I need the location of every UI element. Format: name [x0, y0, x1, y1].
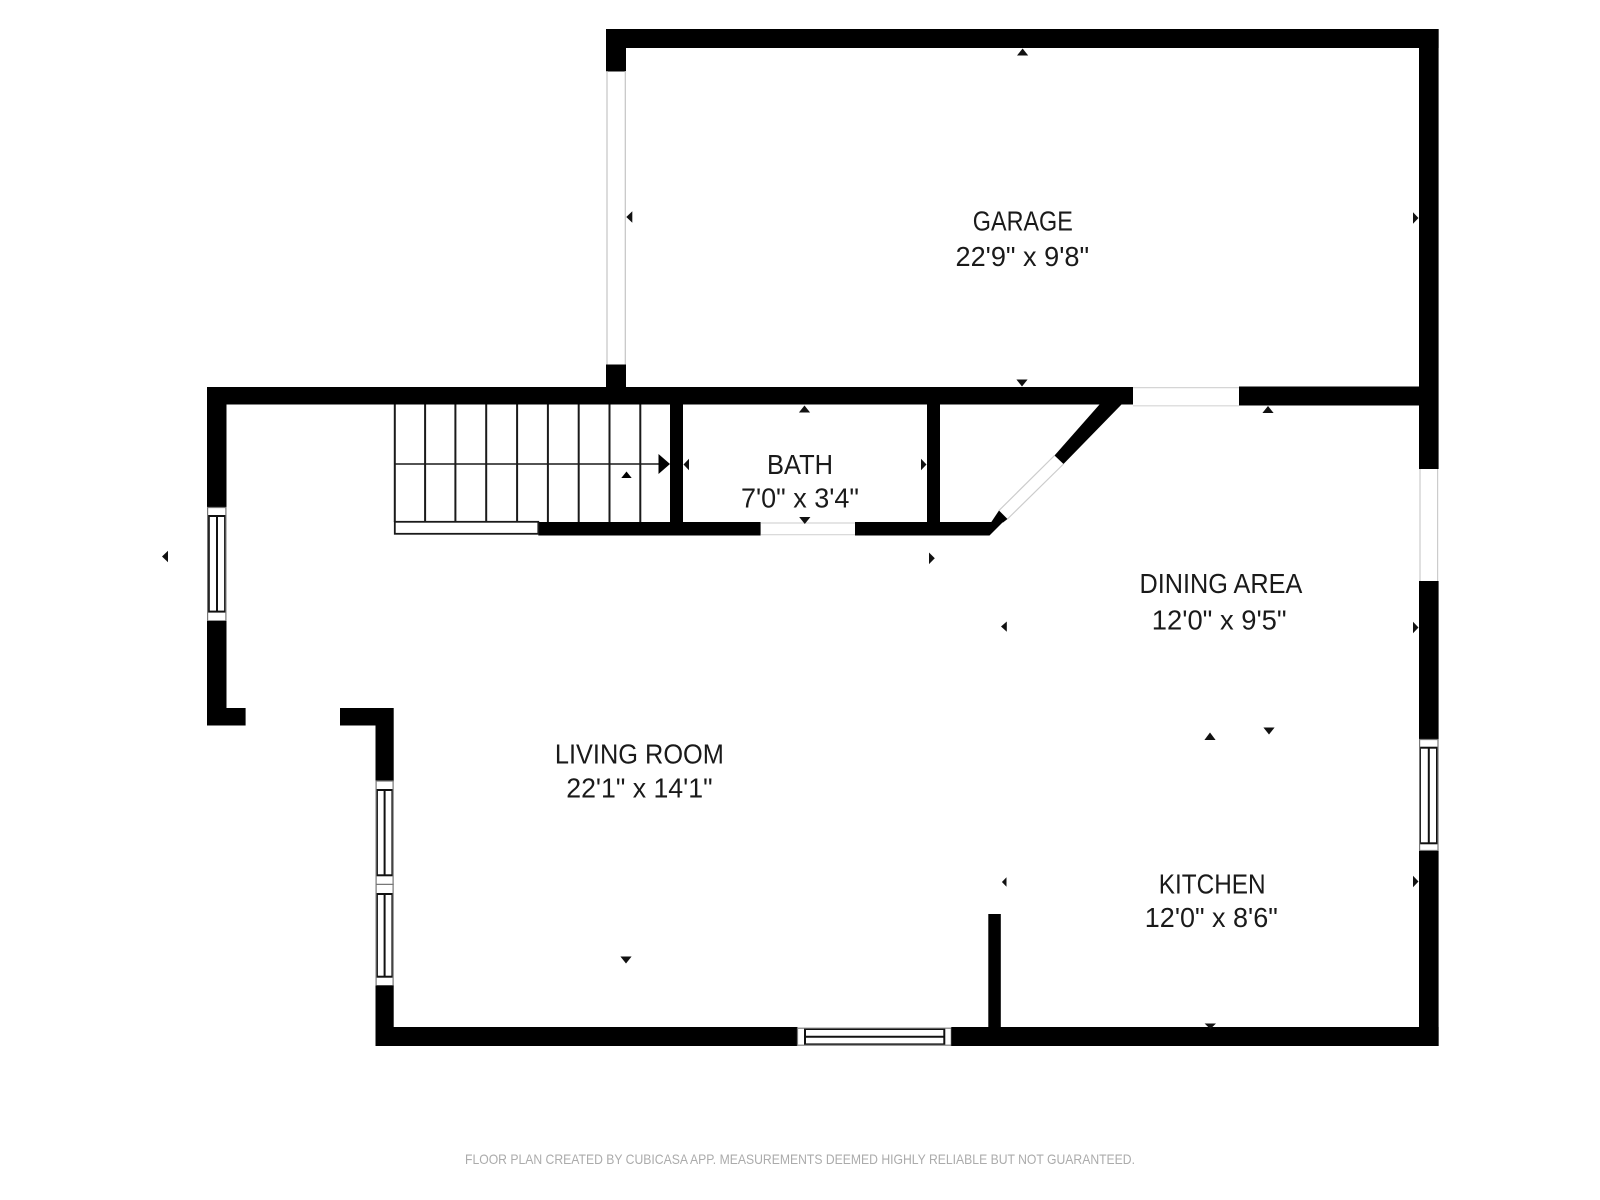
svg-text:FLOOR PLAN CREATED BY CUBICASA: FLOOR PLAN CREATED BY CUBICASA APP. MEAS… — [465, 1151, 1135, 1167]
svg-text:12'0" x 9'5": 12'0" x 9'5" — [1152, 604, 1287, 635]
svg-text:22'9" x 9'8": 22'9" x 9'8" — [956, 241, 1090, 272]
svg-text:KITCHEN: KITCHEN — [1159, 869, 1266, 900]
svg-text:22'1" x 14'1": 22'1" x 14'1" — [566, 773, 712, 804]
svg-text:7'0" x 3'4": 7'0" x 3'4" — [741, 483, 859, 514]
svg-text:GARAGE: GARAGE — [973, 206, 1073, 237]
svg-text:DINING AREA: DINING AREA — [1140, 568, 1303, 599]
svg-text:BATH: BATH — [767, 449, 833, 480]
svg-text:LIVING ROOM: LIVING ROOM — [555, 739, 724, 770]
svg-text:12'0" x 8'6": 12'0" x 8'6" — [1145, 902, 1278, 933]
